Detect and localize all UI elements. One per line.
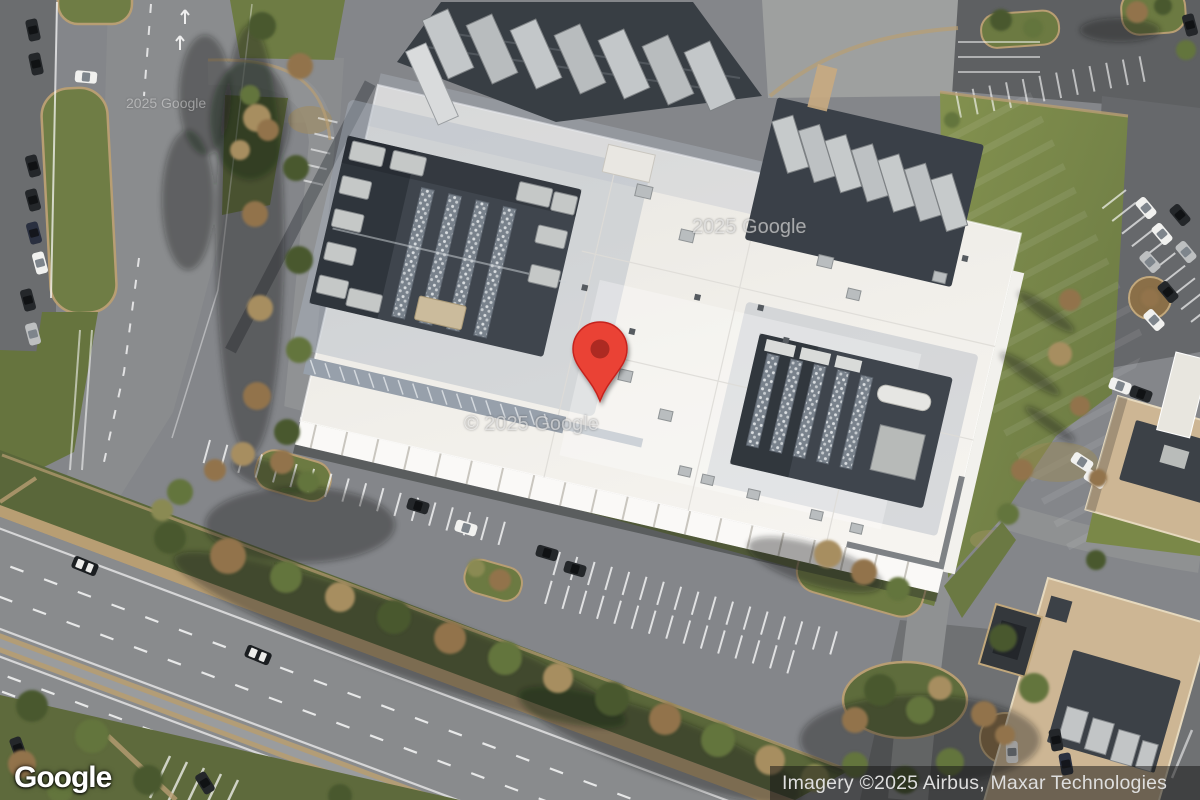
- map-viewport[interactable]: 2025 Google 2025 Google © 2025 Google Go…: [0, 0, 1200, 800]
- imagery-attribution: Imagery ©2025 Airbus, Maxar Technologies: [770, 766, 1200, 800]
- map-canvas[interactable]: [0, 0, 1200, 800]
- pin-inner-dot: [591, 340, 610, 359]
- attribution-text: Imagery ©2025 Airbus, Maxar Technologies: [782, 772, 1167, 795]
- google-logo[interactable]: Google: [14, 761, 111, 795]
